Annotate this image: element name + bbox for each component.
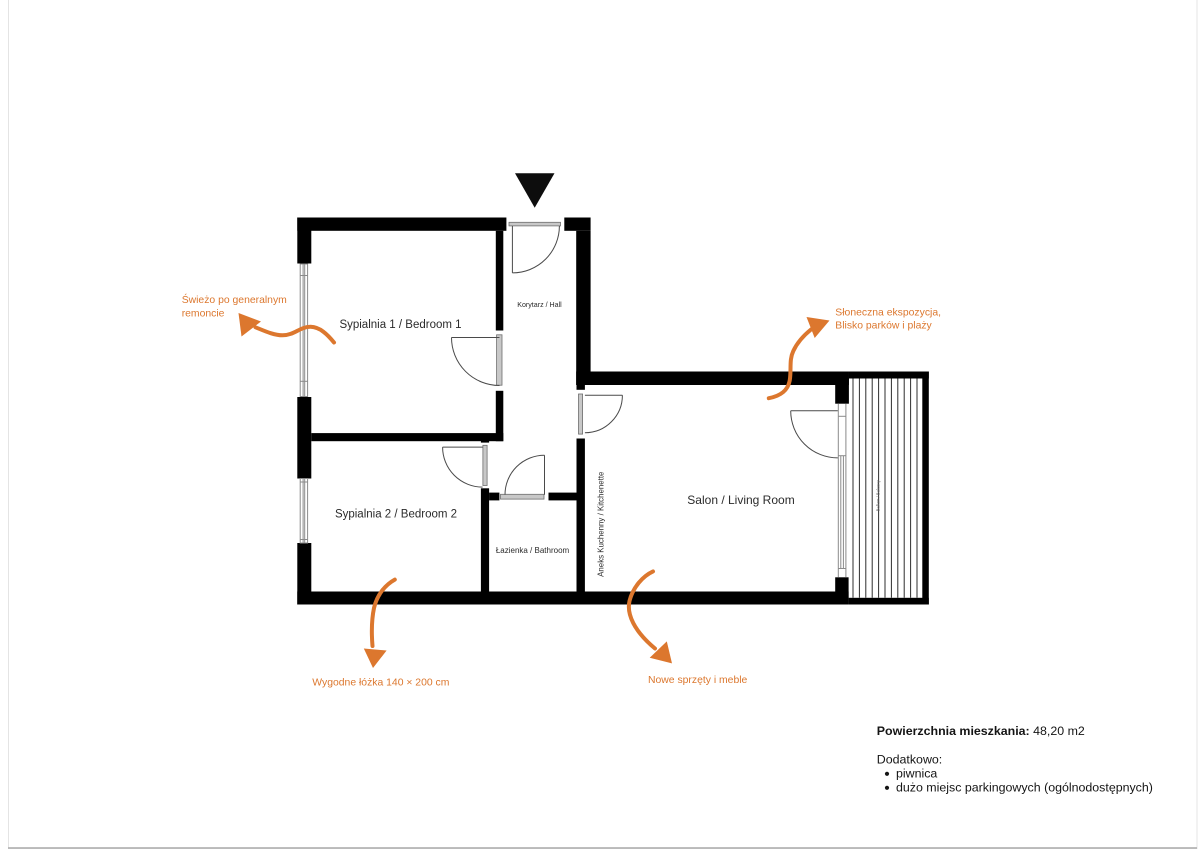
svg-text:remoncie: remoncie [182, 309, 225, 320]
svg-text:Powierzchnia mieszkania: 48,20: Powierzchnia mieszkania: 48,20 m2 [877, 724, 1085, 738]
svg-text:Wygodne łóżka 140 × 200 cm: Wygodne łóżka 140 × 200 cm [312, 678, 449, 689]
svg-text:Łazienka / Bathroom: Łazienka / Bathroom [496, 546, 570, 555]
svg-text:Sypialnia 2 / Bedroom 2: Sypialnia 2 / Bedroom 2 [335, 509, 457, 521]
svg-text:Dodatkowo:: Dodatkowo: [877, 753, 942, 767]
svg-text:Słoneczna ekspozycja,: Słoneczna ekspozycja, [835, 308, 941, 319]
svg-text:piwnica: piwnica [896, 767, 937, 781]
svg-text:Nowe sprzęty i meble: Nowe sprzęty i meble [648, 675, 748, 686]
svg-text:Świeżo po generalnym: Świeżo po generalnym [182, 293, 287, 306]
svg-text:Balkon / Balcony: Balkon / Balcony [876, 479, 881, 511]
svg-text:Sypialnia 1 / Bedroom 1: Sypialnia 1 / Bedroom 1 [339, 319, 461, 331]
svg-text:Salon / Living Room: Salon / Living Room [687, 493, 794, 507]
svg-text:Korytarz / Hall: Korytarz / Hall [517, 301, 562, 309]
svg-text:Aneks Kuchenny / Kitchenette: Aneks Kuchenny / Kitchenette [597, 471, 606, 577]
svg-text:dużo miejsc parkingowych (ogól: dużo miejsc parkingowych (ogólnodostępny… [896, 781, 1153, 795]
svg-text:Blisko parków i plaży: Blisko parków i plaży [835, 321, 932, 332]
